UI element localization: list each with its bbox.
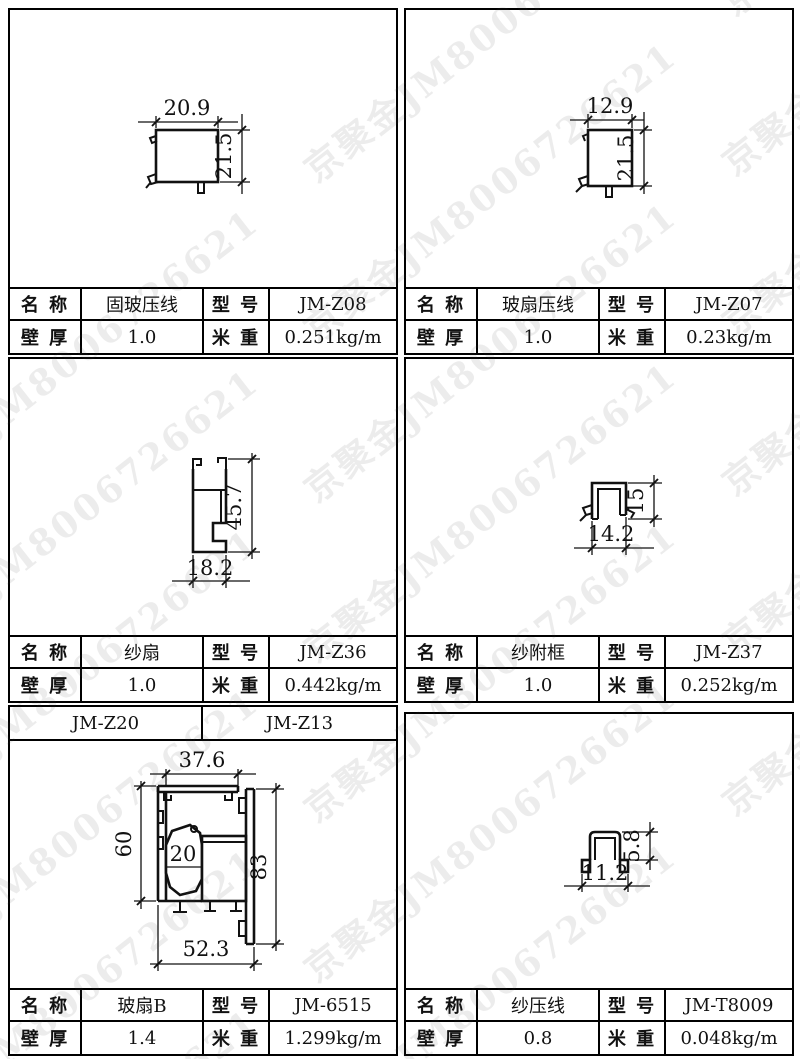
label-wall: 壁 厚 — [10, 669, 82, 701]
value-name: 纱扇 — [82, 637, 204, 669]
value-model: JM-T8009 — [666, 990, 792, 1022]
spec-table: 名 称 纱附框 型 号 JM-Z37 壁 厚 1.0 米 重 0.252kg/m — [406, 635, 792, 701]
value-wall: 1.0 — [82, 669, 204, 701]
profile-drawing-screen-bead: 11.2 5.8 — [406, 714, 792, 988]
dim-width: 20.9 — [164, 96, 211, 120]
label-name: 名 称 — [406, 990, 478, 1022]
profile-drawing-glazing-bead: 20.9 21.5 — [10, 10, 396, 287]
header-model-right: JM-Z13 — [203, 707, 396, 739]
value-name: 玻扇压线 — [478, 289, 600, 321]
label-name: 名 称 — [10, 990, 82, 1022]
value-wall: 1.0 — [82, 321, 204, 353]
label-name: 名 称 — [10, 289, 82, 321]
label-wall: 壁 厚 — [406, 321, 478, 353]
value-name: 固玻压线 — [82, 289, 204, 321]
profile-t-leg — [173, 901, 187, 912]
profile-top-prongs — [193, 458, 226, 469]
profile-right-chamber — [202, 836, 246, 901]
value-name: 玻扇B — [82, 990, 204, 1022]
label-model: 型 号 — [204, 289, 270, 321]
dim-line-left — [134, 781, 156, 909]
label-wall: 壁 厚 — [10, 321, 82, 353]
value-model: JM-Z37 — [666, 637, 792, 669]
value-weight: 0.048kg/m — [666, 1022, 792, 1054]
dim-width: 12.9 — [587, 94, 634, 118]
spec-table: 名 称 玻扇压线 型 号 JM-Z07 壁 厚 1.0 米 重 0.23kg/m — [406, 287, 792, 353]
dim-left-height: 60 — [112, 831, 136, 858]
value-model: JM-6515 — [270, 990, 396, 1022]
profile-cap-inner — [595, 838, 615, 860]
profile-panel-jm-z37: 14.2 15 名 称 纱附框 型 号 JM-Z37 壁 厚 1.0 米 重 0… — [404, 357, 794, 703]
value-model: JM-Z07 — [666, 289, 792, 321]
label-weight: 米 重 — [600, 321, 666, 353]
header-model-left: JM-Z20 — [10, 707, 203, 739]
spec-table: 名 称 纱压线 型 号 JM-T8009 壁 厚 0.8 米 重 0.048kg… — [406, 988, 792, 1054]
label-wall: 壁 厚 — [406, 669, 478, 701]
value-wall: 1.0 — [478, 321, 600, 353]
label-name: 名 称 — [10, 637, 82, 669]
profile-panel-jm-6515: JM-Z20 JM-Z13 37.6 60 — [8, 705, 398, 1056]
catalog-page: 20.9 21.5 名 称 固玻压线 型 号 JM-Z08 壁 厚 1.0 米 … — [0, 0, 800, 1059]
profile-panel-jm-z36: 45.7 18.2 名 称 纱扇 型 号 JM-Z36 壁 厚 1.0 米 重 … — [8, 357, 398, 703]
label-model: 型 号 — [204, 637, 270, 669]
dim-bottom-width: 52.3 — [183, 937, 230, 961]
profile-drawing-glass-sash: 37.6 60 20 83 52.3 — [10, 741, 396, 988]
value-wall: 1.4 — [82, 1022, 204, 1054]
profile-drawing-screen-sash: 45.7 18.2 — [10, 359, 396, 635]
dim-top-width: 37.6 — [179, 748, 226, 772]
profile-inner — [592, 489, 626, 519]
label-wall: 壁 厚 — [10, 1022, 82, 1054]
dim-right-height: 83 — [247, 854, 271, 881]
spec-table: 名 称 纱扇 型 号 JM-Z36 壁 厚 1.0 米 重 0.442kg/m — [10, 635, 396, 701]
profile-outline — [156, 130, 218, 182]
dim-height: 45.7 — [222, 484, 246, 531]
value-wall: 1.0 — [478, 669, 600, 701]
label-weight: 米 重 — [204, 669, 270, 701]
label-name: 名 称 — [406, 289, 478, 321]
label-weight: 米 重 — [204, 321, 270, 353]
label-model: 型 号 — [600, 990, 666, 1022]
profile-panel-jm-t8009: 11.2 5.8 名 称 纱压线 型 号 JM-T8009 壁 厚 0.8 米 … — [404, 712, 794, 1056]
value-weight: 0.23kg/m — [666, 321, 792, 353]
spec-table: 名 称 玻扇B 型 号 JM-6515 壁 厚 1.4 米 重 1.299kg/… — [10, 988, 396, 1054]
profile-drawing-sash-bead: 12.9 21.5 — [406, 10, 792, 287]
dim-height: 21.5 — [614, 135, 638, 182]
label-model: 型 号 — [600, 289, 666, 321]
dim-width: 14.2 — [588, 522, 635, 546]
value-model: JM-Z08 — [270, 289, 396, 321]
profile-drawing-screen-frame: 14.2 15 — [406, 359, 792, 635]
dim-height: 21.5 — [212, 133, 236, 180]
value-weight: 0.251kg/m — [270, 321, 396, 353]
panel-header: JM-Z20 JM-Z13 — [10, 707, 396, 741]
spec-table: 名 称 固玻压线 型 号 JM-Z08 壁 厚 1.0 米 重 0.251kg/… — [10, 287, 396, 353]
value-model: JM-Z36 — [270, 637, 396, 669]
value-weight: 1.299kg/m — [270, 1022, 396, 1054]
profile-panel-jm-z07: 12.9 21.5 名 称 玻扇压线 型 号 JM-Z07 壁 厚 1.0 米 … — [404, 8, 794, 355]
value-name: 纱压线 — [478, 990, 600, 1022]
label-wall: 壁 厚 — [406, 1022, 478, 1054]
label-model: 型 号 — [204, 990, 270, 1022]
dim-width: 11.2 — [582, 861, 629, 885]
label-name: 名 称 — [406, 637, 478, 669]
profile-leg — [606, 186, 612, 197]
label-weight: 米 重 — [204, 1022, 270, 1054]
value-name: 纱附框 — [478, 637, 600, 669]
label-weight: 米 重 — [600, 669, 666, 701]
profile-leg — [198, 182, 204, 193]
dim-height: 15 — [624, 488, 648, 515]
profile-chamber-feet — [204, 901, 242, 911]
dim-height: 5.8 — [620, 829, 644, 862]
value-wall: 0.8 — [478, 1022, 600, 1054]
label-weight: 米 重 — [600, 1022, 666, 1054]
dim-chamber: 20 — [170, 842, 197, 866]
label-model: 型 号 — [600, 637, 666, 669]
value-weight: 0.442kg/m — [270, 669, 396, 701]
value-weight: 0.252kg/m — [666, 669, 792, 701]
profile-panel-jm-z08: 20.9 21.5 名 称 固玻压线 型 号 JM-Z08 壁 厚 1.0 米 … — [8, 8, 398, 355]
profile-top-flange — [158, 786, 238, 792]
dim-width: 18.2 — [187, 556, 234, 580]
